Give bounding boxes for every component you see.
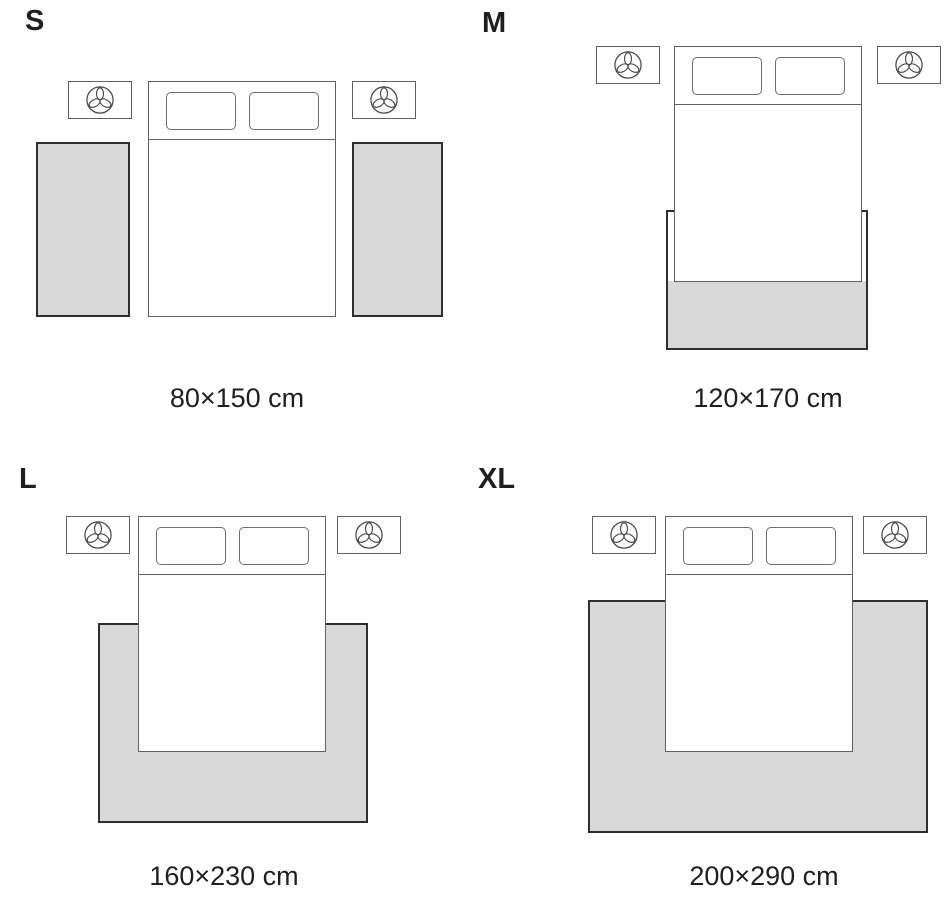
nightstand-right — [337, 516, 401, 554]
rug-right-runner — [352, 142, 443, 317]
pillow-left — [692, 57, 762, 95]
plant-icon — [338, 516, 400, 554]
plant-icon — [878, 46, 940, 84]
pillow-left — [166, 92, 236, 130]
bed — [674, 46, 862, 282]
size-label: M — [482, 9, 506, 38]
pillow-right — [766, 527, 836, 565]
plant-icon — [353, 81, 415, 119]
rug-visible-area — [668, 281, 866, 348]
pillow-right — [775, 57, 845, 95]
bed-headboard — [139, 517, 325, 575]
bed — [665, 516, 853, 752]
pillow-right — [239, 527, 309, 565]
plant-icon — [67, 516, 129, 554]
pillow-left — [156, 527, 226, 565]
plant-icon — [597, 46, 659, 84]
rug-left-runner — [36, 142, 130, 317]
nightstand-right — [863, 516, 927, 554]
plant-icon — [69, 81, 131, 119]
pillow-right — [249, 92, 319, 130]
rug-size-guide: S — [0, 0, 950, 900]
plant-icon — [593, 516, 655, 554]
bed — [148, 81, 336, 317]
pillow-left — [683, 527, 753, 565]
nightstand-left — [68, 81, 132, 119]
size-label: XL — [478, 465, 515, 494]
nightstand-right — [352, 81, 416, 119]
plant-icon — [864, 516, 926, 554]
size-caption: 200×290 cm — [659, 863, 869, 890]
bed-headboard — [675, 47, 861, 105]
bed-headboard — [149, 82, 335, 140]
size-panel-xl: XL — [475, 450, 950, 900]
size-caption: 120×170 cm — [663, 385, 873, 412]
size-panel-s: S — [0, 0, 475, 450]
nightstand-left — [66, 516, 130, 554]
size-label: S — [25, 7, 44, 36]
size-caption: 160×230 cm — [119, 863, 329, 890]
size-caption: 80×150 cm — [132, 385, 342, 412]
bed-headboard — [666, 517, 852, 575]
size-label: L — [19, 465, 37, 494]
nightstand-left — [596, 46, 660, 84]
size-panel-m: M — [475, 0, 950, 450]
nightstand-right — [877, 46, 941, 84]
bed — [138, 516, 326, 752]
size-panel-l: L — [0, 450, 475, 900]
nightstand-left — [592, 516, 656, 554]
